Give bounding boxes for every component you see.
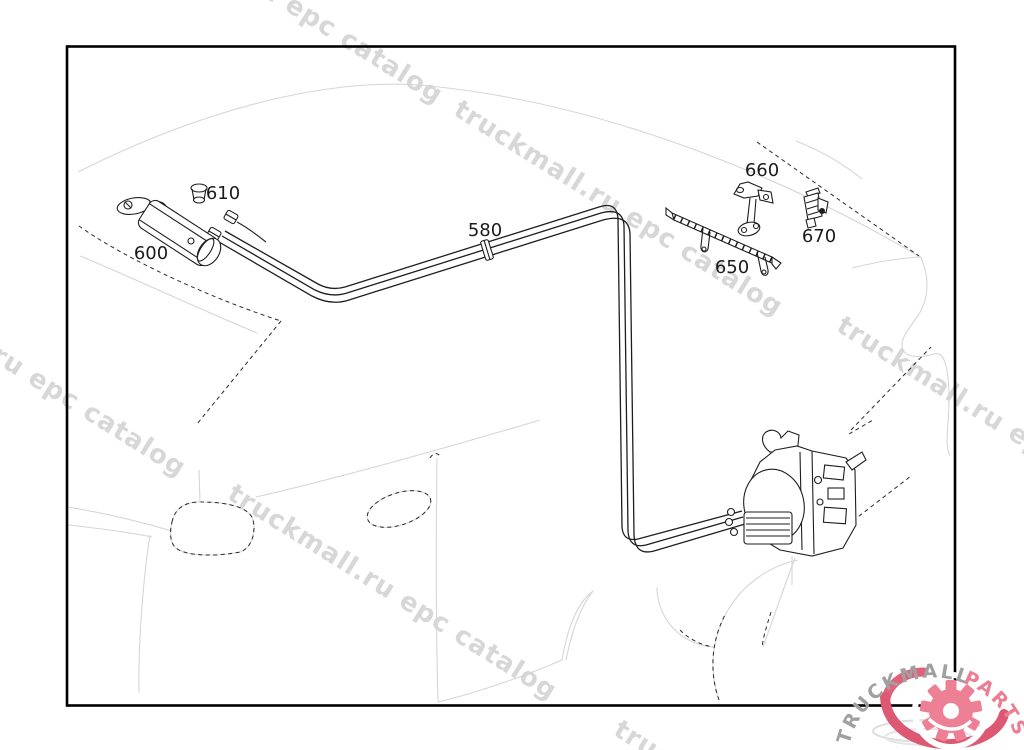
- clamp-bolt: [819, 208, 825, 214]
- pipe-line-1: [225, 206, 742, 540]
- branch-pipe: [237, 222, 266, 242]
- bracket-foot: [737, 220, 761, 238]
- door-handle: [363, 484, 436, 535]
- mirror-top-line: [852, 257, 920, 268]
- watermark-layer: truckmall.ru epc catalog truckmall.ru ep…: [0, 0, 1024, 750]
- pipe-end-fitting: [726, 519, 733, 526]
- leg-hole: [762, 270, 766, 274]
- rail-tip: [666, 208, 674, 220]
- part-label-660[interactable]: 660: [745, 160, 779, 181]
- vehicle-sketch: [68, 84, 950, 702]
- pipe-end-fitting: [728, 509, 735, 516]
- part-label-600[interactable]: 600: [134, 243, 168, 264]
- tire-inner-arc: [657, 587, 713, 647]
- a-pillar-dashed: [197, 321, 281, 424]
- pipe-line-2: [222, 212, 743, 546]
- part-label-580[interactable]: 580: [468, 220, 502, 241]
- watermark-text: truckmall.ru epc catalog: [222, 478, 562, 706]
- part-610-grommet: [191, 184, 207, 203]
- grommet-top: [191, 184, 207, 192]
- valve-port: [828, 488, 844, 499]
- tire-outer-arc: [713, 560, 798, 700]
- fitting-block: [744, 512, 792, 544]
- watermark-text: truckmall.ru epc catalog: [0, 255, 191, 483]
- rail-end: [772, 257, 781, 269]
- hood-line: [256, 420, 540, 497]
- pipe-end-fitting: [731, 529, 738, 536]
- wheel-arch: [562, 591, 593, 660]
- watermark-text: truckmall.ru epc catalog: [108, 0, 448, 110]
- bracket-arm-right: [758, 190, 773, 203]
- part-label-670[interactable]: 670: [802, 226, 836, 247]
- pipe-fitting: [223, 210, 238, 225]
- bumper-line: [68, 507, 172, 531]
- rear-window-line: [796, 141, 862, 179]
- fender-edge: [139, 535, 150, 693]
- catalog-diagram-page: truckmall.ru epc catalog truckmall.ru ep…: [0, 0, 1024, 750]
- door-top-dashed: [430, 454, 441, 459]
- door-line: [436, 458, 438, 702]
- brand-logo: TRUCKMALL PARTS: [833, 660, 1024, 747]
- part-labels: 600 610 580 660 650 670: [134, 160, 836, 278]
- pipe-line-3: [219, 218, 745, 552]
- door-handle-dashed: [363, 484, 436, 535]
- part-670-clamp: [804, 188, 828, 228]
- part-label-650[interactable]: 650: [715, 257, 749, 278]
- roof-edge-dashed: [757, 142, 919, 256]
- bracket-leg: [747, 198, 756, 224]
- cab-rear-dashed: [849, 420, 873, 434]
- pipe-assembly: [206, 206, 745, 552]
- clamp-bolt: [188, 238, 194, 244]
- watermark-text: truckmall.ru epc catalog: [831, 310, 1024, 538]
- bumper-line: [68, 525, 152, 537]
- front-crease: [199, 470, 200, 503]
- part-label-610[interactable]: 610: [206, 183, 240, 204]
- valve-port: [823, 465, 844, 480]
- part-660-bracket: [734, 182, 773, 238]
- valve-port: [823, 507, 846, 523]
- grommet-base: [194, 197, 205, 203]
- windshield-base-line: [80, 256, 257, 333]
- valve-block-assembly: [737, 430, 866, 556]
